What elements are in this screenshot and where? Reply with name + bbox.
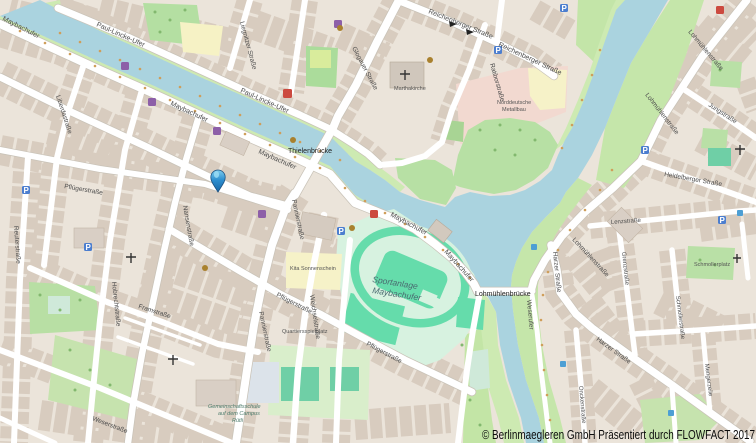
svg-text:Lohmühlenbrücke: Lohmühlenbrücke (475, 291, 531, 298)
svg-text:P: P (86, 243, 92, 252)
svg-text:Norddeutsche: Norddeutsche (497, 100, 531, 106)
svg-text:P: P (339, 227, 345, 236)
svg-text:Rütli: Rütli (232, 418, 244, 424)
svg-text:Kita Sonnenschein: Kita Sonnenschein (290, 266, 336, 272)
svg-text:Metallbau: Metallbau (502, 107, 526, 113)
svg-text:P: P (643, 146, 649, 155)
svg-text:auf dem Campus: auf dem Campus (218, 411, 260, 417)
svg-text:Quartiersspielplatz: Quartiersspielplatz (282, 329, 328, 335)
svg-text:Marthakirche: Marthakirche (394, 86, 426, 92)
svg-text:Gemeinschaftsschule: Gemeinschaftsschule (208, 404, 261, 410)
svg-text:P: P (720, 216, 726, 225)
svg-text:© Berlinmaegleren GmbH Präsent: © Berlinmaegleren GmbH Präsentiert durch… (482, 428, 755, 442)
svg-text:Thielenbrücke: Thielenbrücke (288, 148, 332, 155)
svg-text:Schmollerplatz: Schmollerplatz (694, 262, 730, 268)
svg-text:P: P (562, 4, 568, 13)
svg-text:P: P (24, 186, 30, 195)
